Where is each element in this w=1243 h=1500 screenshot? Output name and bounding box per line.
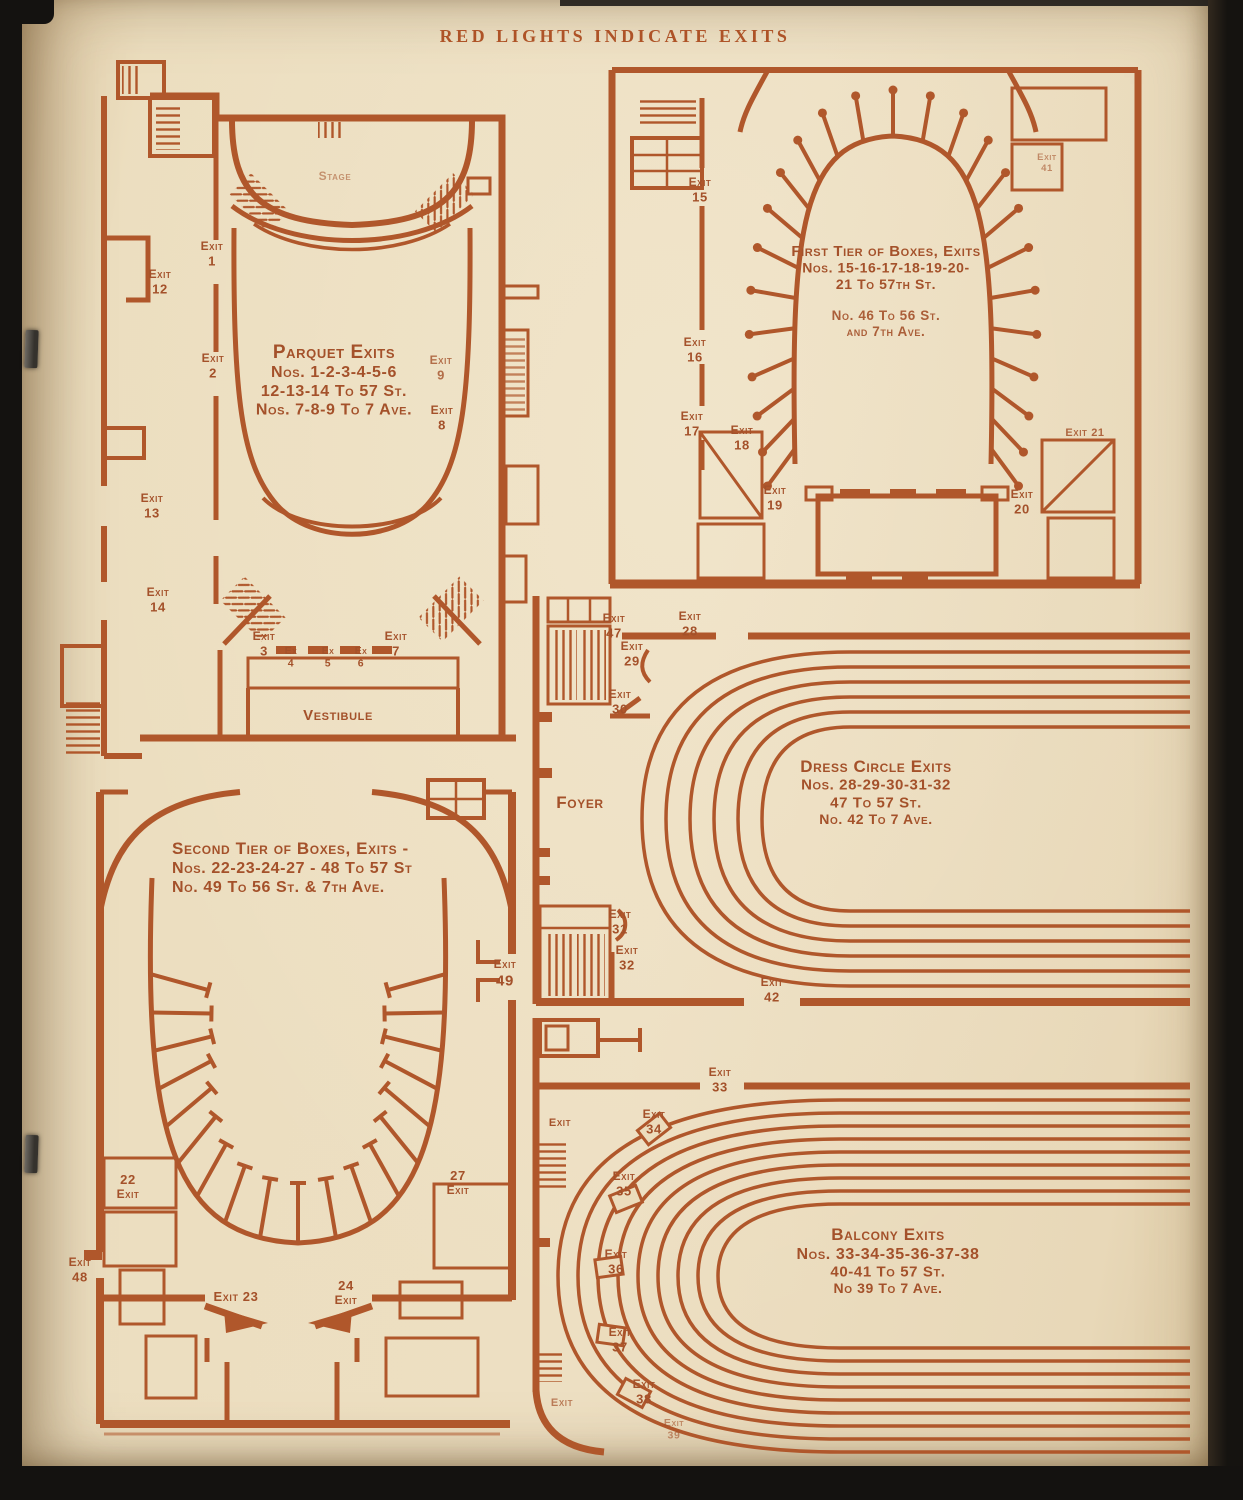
plan-linework (506, 466, 538, 524)
plan-linework: Exit (689, 175, 712, 189)
plan-linework: No. 42 To 7 Ave. (819, 811, 932, 827)
plan-linework (890, 489, 916, 498)
plan-linework: Dress Circle Exits (800, 757, 952, 776)
plan-linework (902, 572, 928, 580)
plan-linework (546, 1026, 568, 1050)
plan-linework: Nos. 15-16-17-18-19-20- (802, 260, 970, 276)
plan-linework (318, 122, 344, 138)
plan-linework (536, 1238, 550, 1247)
plan-linework (344, 1163, 359, 1168)
plan-linework (987, 248, 1028, 268)
plan-linework: Exit (385, 629, 408, 643)
plan-linework (385, 1012, 445, 1013)
plan-linework (780, 173, 809, 209)
parquet-label-stage: Stage (319, 169, 352, 183)
plan-linework (318, 1177, 334, 1180)
staple-top (24, 330, 38, 368)
plan-linework (1019, 448, 1028, 457)
plan-linework (568, 598, 590, 622)
parquet-label-exit-8: Exit8 (431, 403, 454, 432)
plan-linework (248, 658, 458, 688)
plan-linework (763, 419, 795, 452)
plan-linework (224, 1310, 268, 1333)
plan-linework (62, 646, 104, 706)
plan-linework (156, 104, 180, 150)
plan-linework (767, 208, 802, 238)
plan-linework: 15 (692, 189, 708, 204)
plan-linework (822, 113, 837, 156)
plan-linework (150, 974, 208, 990)
first_tier-label-caption2: No. 46 To 56 St.and 7th Ave. (832, 308, 941, 339)
plan-linework (536, 876, 550, 885)
plan-linework (1032, 330, 1041, 339)
plan-linework: Ex (322, 645, 335, 657)
plan-linework: 20 (1014, 501, 1030, 516)
plan-linework: Exit (609, 1325, 632, 1339)
plan-linework: Exit (764, 483, 787, 497)
plan-linework (1012, 144, 1062, 190)
plan-linework (818, 108, 827, 117)
plan-linework (1024, 243, 1033, 252)
plan-linework (640, 96, 696, 124)
plan-linework: Exit (141, 491, 164, 505)
plan-linework: 17 (684, 423, 700, 438)
plan-linework: Exit (1037, 152, 1057, 163)
balcony-label-exit-wall-lower: Exit (551, 1397, 573, 1409)
plan-linework (326, 1179, 336, 1238)
plan-linework: Vestibule (303, 707, 373, 724)
plan-linework (992, 389, 1029, 416)
plan-linework (992, 419, 1024, 452)
plan-linework: Exit (621, 639, 644, 653)
plan-linework: 31 (612, 921, 628, 936)
plan-linework: 37 (612, 1339, 628, 1354)
parquet-label-exit-3: Exit3 (253, 629, 276, 658)
plan-linework (748, 372, 757, 381)
plan-linework: Exit 21 (1065, 427, 1104, 439)
plan-linework: 3 (260, 643, 268, 658)
plan-linework (478, 940, 500, 1002)
plan-linework (818, 496, 996, 574)
plan-linework (752, 358, 794, 377)
parquet-label-exit-14: Exit14 (147, 585, 170, 614)
plan-linework (984, 136, 993, 145)
dress_circle-label-exit-42: Exit42 (761, 975, 784, 1004)
second_tier-label-exit-49: Exit49 (494, 957, 517, 990)
parquet-label-exit-13: Exit13 (141, 491, 164, 520)
plan-linework (753, 243, 762, 252)
plan-linework: 47 (606, 625, 622, 640)
plan-linework: 24 (338, 1278, 354, 1293)
plan-linework (428, 780, 484, 818)
plan-linework (984, 208, 1019, 238)
plan-linework: 1 (208, 253, 216, 268)
plan-linework: 28 (682, 623, 698, 638)
plan-linework (642, 650, 650, 682)
second_tier-label-exit-48: Exit48 (69, 1255, 92, 1284)
plan-linework: Exit (1011, 487, 1034, 501)
first_tier-label-exit-19: Exit19 (764, 483, 787, 512)
plan-linework (384, 1036, 442, 1050)
plan-linework (384, 1088, 430, 1127)
plan-linework (122, 66, 140, 94)
plan-linework: 9 (437, 367, 445, 382)
plan-linework (746, 286, 755, 295)
plan-linework: Second Tier of Boxes, Exits - (172, 839, 409, 858)
plan-linework (1014, 204, 1023, 213)
plan-linework: 18 (734, 437, 750, 452)
plan-linework (753, 412, 762, 421)
plan-linework: No. 49 To 56 St. & 7th Ave. (172, 879, 385, 896)
plan-linework: 36 (608, 1261, 624, 1276)
plan-linework (505, 334, 525, 412)
plan-linework: 42 (764, 989, 780, 1004)
balcony-label-exit-37: Exit37 (609, 1325, 632, 1354)
plan-linework (888, 86, 897, 95)
plan-linework: 19 (767, 497, 783, 512)
parquet-label-exit-12: Exit12 (149, 267, 172, 296)
scan-edge-top (560, 0, 1243, 6)
plan-linework: 38 (636, 1391, 652, 1406)
plan-linework (104, 238, 148, 300)
plan-linework: 27 (450, 1168, 466, 1183)
plan-linework (751, 290, 796, 298)
plan-linework (151, 1012, 211, 1013)
plan-linework: Exit (494, 957, 517, 971)
parquet-labels: StageExit1Exit12Exit2Exit9Exit8Exit13Exi… (141, 169, 454, 724)
plan-linework (197, 1144, 226, 1196)
plan-linework (991, 449, 1018, 486)
scan-corner-top-left (0, 0, 54, 24)
plan-linework (966, 140, 988, 180)
plan-linework (794, 136, 992, 464)
plan-linework (738, 712, 1190, 926)
first_tier-label-exit-41: Exit41 (1037, 152, 1057, 174)
plan-linework: Exit (447, 1183, 470, 1197)
plan-linework: 35 (616, 1183, 632, 1198)
plan-linework (146, 1336, 196, 1398)
plan-linework: Exit (679, 609, 702, 623)
plan-linework: 47 To 57 St. (830, 794, 922, 811)
plan-linework: 49 (496, 973, 514, 990)
first_tier-label-exit-16: Exit16 (684, 335, 707, 364)
plan-linework: 6 (358, 657, 364, 669)
plan-linework (263, 498, 441, 527)
scan-edge-right (1208, 0, 1243, 1500)
plan-linework (207, 1338, 357, 1422)
plan-linework: First Tier of Boxes, Exits (791, 243, 980, 260)
plan-linework: 30 (612, 701, 628, 716)
plan-linework: Exit (551, 1397, 573, 1409)
plan-linework (767, 449, 794, 486)
plan-linework (552, 630, 577, 700)
plan-linework (1031, 286, 1040, 295)
plan-linework (992, 358, 1034, 377)
plan-linework (351, 1166, 371, 1223)
plan-linework (104, 1212, 176, 1266)
plan-linework: Nos. 28-29-30-31-32 (801, 777, 951, 794)
plan-linework (1029, 372, 1038, 381)
plan-linework (936, 489, 966, 498)
plan-linework (846, 572, 872, 580)
plan-linework (536, 768, 552, 778)
plan-linework: Parquet Exits (273, 342, 395, 363)
plan-linework: Ex (285, 645, 298, 657)
plan-linework: 8 (438, 417, 446, 432)
plan-linework: Foyer (556, 793, 603, 812)
plan-linework (856, 96, 864, 141)
plan-linework (388, 974, 446, 990)
plan-linework: Exit (709, 1065, 732, 1079)
plan-linework: Exit (201, 239, 224, 253)
second_tier-label-exit-23: Exit 23 (214, 1289, 259, 1304)
first_tier-label-caption: First Tier of Boxes, ExitsNos. 15-16-17-… (791, 243, 980, 292)
plan-linework: Exit (335, 1293, 358, 1307)
plan-linework (926, 91, 935, 100)
parquet-label-vestibule: Vestibule (303, 707, 373, 724)
plan-linework (793, 136, 802, 145)
plan-linework: Exit (613, 1169, 636, 1183)
plan-linework (544, 934, 572, 996)
plan-linework: Exit (430, 353, 453, 367)
plan-linework (418, 576, 483, 641)
plan-linework (538, 1140, 566, 1188)
plan-linework (370, 1144, 399, 1196)
plan-linework: 2 (209, 365, 217, 380)
plan-linework: Exit (69, 1255, 92, 1269)
plan-linework: Balcony Exits (831, 1225, 944, 1244)
plan-linework: Exit (681, 409, 704, 423)
plan-linework (380, 1116, 418, 1163)
plan-linework (700, 432, 762, 518)
plan-linework (104, 1158, 176, 1208)
plan-linework: Stage (319, 169, 352, 183)
plan-linework (740, 70, 768, 132)
second_tier-label-exit-22: 22Exit (117, 1172, 140, 1201)
plan-linework: Exit (731, 423, 754, 437)
plan-linework: 12-13-14 To 57 St. (261, 383, 407, 400)
plan-linework (1001, 168, 1010, 177)
plan-linework: 16 (687, 349, 703, 364)
plan-linework: Exit (431, 403, 454, 417)
plan-linework (598, 1028, 640, 1052)
plan-linework: 33 (712, 1079, 728, 1094)
second_tier-label-exit-27: 27Exit (447, 1168, 470, 1197)
plan-linework: Exit (603, 611, 626, 625)
plan-linework: Exit (664, 1417, 684, 1429)
parquet-label-exit-1: Exit1 (201, 239, 224, 268)
plan-linework (386, 1338, 478, 1396)
plan-linework: 22 (120, 1172, 136, 1187)
parquet-label-exit-9: Exit9 (430, 353, 453, 382)
first_tier-label-exit-20: Exit20 (1011, 487, 1034, 516)
plan-linework (536, 712, 552, 722)
plan-linework (577, 934, 605, 996)
plan-linework: 14 (150, 599, 166, 614)
staple-bottom (24, 1135, 38, 1173)
scan-edge-bottom (0, 1466, 1243, 1500)
plan-linework: Exit (616, 943, 639, 957)
parquet-label-exit-2: Exit2 (202, 351, 225, 380)
plan-linework: 4 (288, 657, 294, 669)
balcony-label-caption: Balcony ExitsNos. 33-34-35-36-37-3840-41… (797, 1225, 980, 1296)
plan-linework: Nos. 33-34-35-36-37-38 (797, 1246, 980, 1263)
plan-linework: Exit (609, 907, 632, 921)
plan-linework: Exit 23 (214, 1289, 259, 1304)
plan-linework (749, 328, 795, 334)
plan-linework: Exit (202, 351, 225, 365)
plan-linework (798, 140, 820, 180)
plan-linework: Exit (761, 975, 784, 989)
plan-linework: 41 (1041, 163, 1053, 174)
floor-plans-svg: StageExit1Exit12Exit2Exit9Exit8Exit13Exi… (0, 0, 1243, 1500)
plan-linework (536, 848, 550, 857)
plan-linework (502, 556, 526, 602)
plan-linework (1042, 440, 1114, 512)
plan-linework: Exit (643, 1107, 666, 1121)
plan-linework (923, 96, 931, 141)
second_tier-label-exit-24: 24Exit (335, 1278, 358, 1307)
plan-linework: Exit (684, 335, 707, 349)
plan-linework (991, 328, 1037, 334)
plan-linework: Exit (549, 1117, 571, 1129)
dress_circle-label-exit-29: Exit29 (621, 639, 644, 668)
plan-linework (690, 682, 1190, 956)
plan-linework (990, 290, 1035, 298)
second_tier-label-caption: Second Tier of Boxes, Exits -Nos. 22-23-… (172, 839, 412, 896)
plan-linework: Exit (605, 1247, 628, 1261)
plan-linework: 32 (619, 957, 635, 972)
dress_circle-label-exit-31: Exit31 (609, 907, 632, 936)
plan-linework: 5 (325, 657, 331, 669)
plan-linework (758, 448, 767, 457)
second-tier-labels: Second Tier of Boxes, Exits -Nos. 22-23-… (69, 839, 517, 1307)
plan-linework (385, 1061, 438, 1089)
plan-linework (1024, 412, 1033, 421)
plan-linework: Nos. 1-2-3-4-5-6 (271, 364, 397, 381)
plan-linework (382, 1029, 386, 1045)
first_tier-label-exit-21: Exit 21 (1065, 427, 1104, 439)
plan-linework: 13 (144, 505, 160, 520)
dress_circle-label-exit-32: Exit32 (616, 943, 639, 972)
plan-linework: 40-41 To 57 St. (830, 1264, 945, 1281)
plan-linework (216, 118, 220, 736)
plan-linework: 21 To 57th St. (836, 276, 936, 292)
plan-linework (206, 982, 210, 997)
plan-linework (1012, 88, 1106, 140)
plan-linework (66, 700, 100, 756)
dress_circle-label-foyer: Foyer (556, 793, 603, 812)
plan-linework: 12 (152, 281, 168, 296)
plan-linework (840, 489, 870, 498)
dress_circle-label-caption: Dress Circle ExitsNos. 28-29-30-31-3247 … (800, 757, 952, 827)
plan-linework (158, 1061, 211, 1089)
plan-linework (776, 168, 785, 177)
scan-edge-left (0, 0, 22, 1500)
plan-linework (714, 697, 1190, 941)
plan-linework: 34 (646, 1121, 662, 1136)
plan-linework (581, 630, 606, 700)
plan-linework (225, 1166, 245, 1223)
plan-linework (851, 91, 860, 100)
plan-linework (1048, 518, 1114, 578)
plan-linework: Exit (149, 267, 172, 281)
balcony-label-exit-39: Exit39 (664, 1417, 684, 1441)
plan-linework: Ex (355, 645, 368, 657)
plan-linework: Nos. 7-8-9 To 7 Ave. (256, 402, 412, 419)
plan-linework: Exit (633, 1377, 656, 1391)
plan-linework (763, 204, 772, 213)
first_tier-label-exit-15: Exit15 (689, 175, 712, 204)
plan-linework: Exit (253, 629, 276, 643)
plan-linework: and 7th Ave. (847, 324, 926, 339)
first_tier-label-exit-18: Exit18 (731, 423, 754, 452)
plan-linework (386, 982, 390, 997)
plan-linework (548, 598, 610, 622)
plan-linework: Exit (609, 687, 632, 701)
plan-linework: 48 (72, 1269, 88, 1284)
plan-linework: Exit (147, 585, 170, 599)
plan-linework: 7 (392, 643, 400, 658)
plan-linework (948, 113, 963, 156)
plan-linework (237, 1163, 252, 1168)
parquet-label-caption: Parquet ExitsNos. 1-2-3-4-5-612-13-14 To… (256, 342, 412, 419)
plan-linework (536, 1352, 562, 1382)
balcony-label-exit-33: Exit33 (709, 1065, 732, 1094)
plan-linework (372, 646, 392, 654)
plan-linework (262, 1177, 278, 1180)
plan-linework: 29 (624, 653, 640, 668)
plan-linework: 39 (668, 1429, 681, 1441)
plan-linework (718, 1204, 1190, 1348)
plan-linework (104, 428, 144, 458)
plan-linework (308, 1310, 352, 1333)
plan-linework: Nos. 22-23-24-27 - 48 To 57 St (172, 860, 412, 877)
plan-linework (260, 1179, 270, 1238)
plan-linework (210, 1029, 214, 1045)
plan-linework (959, 108, 968, 117)
plan-linework: No. 46 To 56 St. (832, 308, 941, 323)
balcony-labels: Exit33ExitExit34Exit35Exit36Exit37Exit38… (549, 1065, 980, 1441)
plan-linework (757, 389, 794, 416)
plan-linework (166, 1088, 212, 1127)
plan-linework (698, 524, 764, 578)
plan-linework (178, 1116, 216, 1163)
plan-linework (745, 330, 754, 339)
plan-linework: Exit (117, 1187, 140, 1201)
plan-linework (502, 286, 538, 298)
plan-linework (154, 1036, 212, 1050)
plan-linework (230, 173, 289, 232)
plan-linework (234, 228, 470, 534)
balcony-label-exit-wall-upper: Exit (549, 1117, 571, 1129)
plan-linework (977, 173, 1006, 209)
dress_circle-label-exit-30: Exit30 (609, 687, 632, 716)
plan-linework: No 39 To 7 Ave. (834, 1280, 943, 1296)
plan-linework (415, 173, 474, 232)
